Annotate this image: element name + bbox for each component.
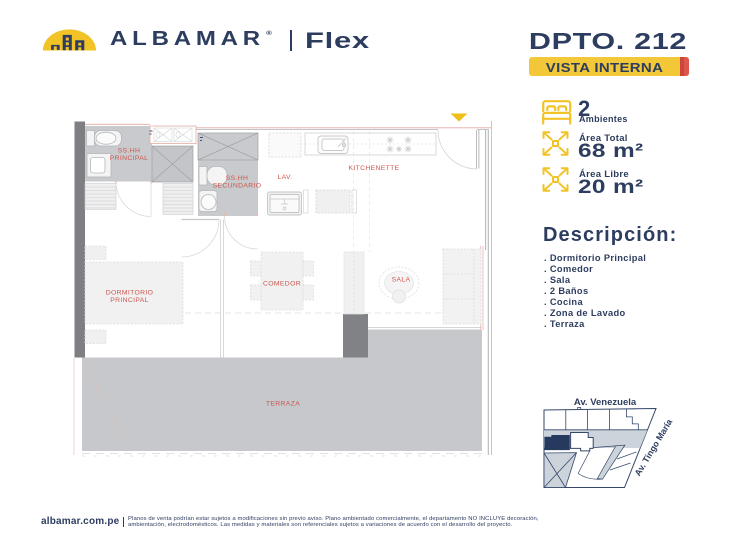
svg-text:PRINCIPAL: PRINCIPAL [110, 155, 149, 162]
svg-text:COMEDOR: COMEDOR [263, 281, 301, 288]
svg-text:SECUNDARIO: SECUNDARIO [213, 183, 262, 190]
svg-text:SS.HH: SS.HH [118, 148, 141, 155]
svg-text:KITCHENETTE: KITCHENETTE [348, 165, 399, 172]
svg-text:DORMITORIO: DORMITORIO [106, 290, 154, 297]
svg-text:SALA: SALA [392, 277, 411, 284]
svg-text:LAV.: LAV. [277, 174, 292, 181]
svg-text:PRINCIPAL: PRINCIPAL [110, 297, 149, 304]
svg-text:TERRAZA: TERRAZA [266, 401, 300, 408]
svg-text:SS.HH: SS.HH [226, 175, 249, 182]
